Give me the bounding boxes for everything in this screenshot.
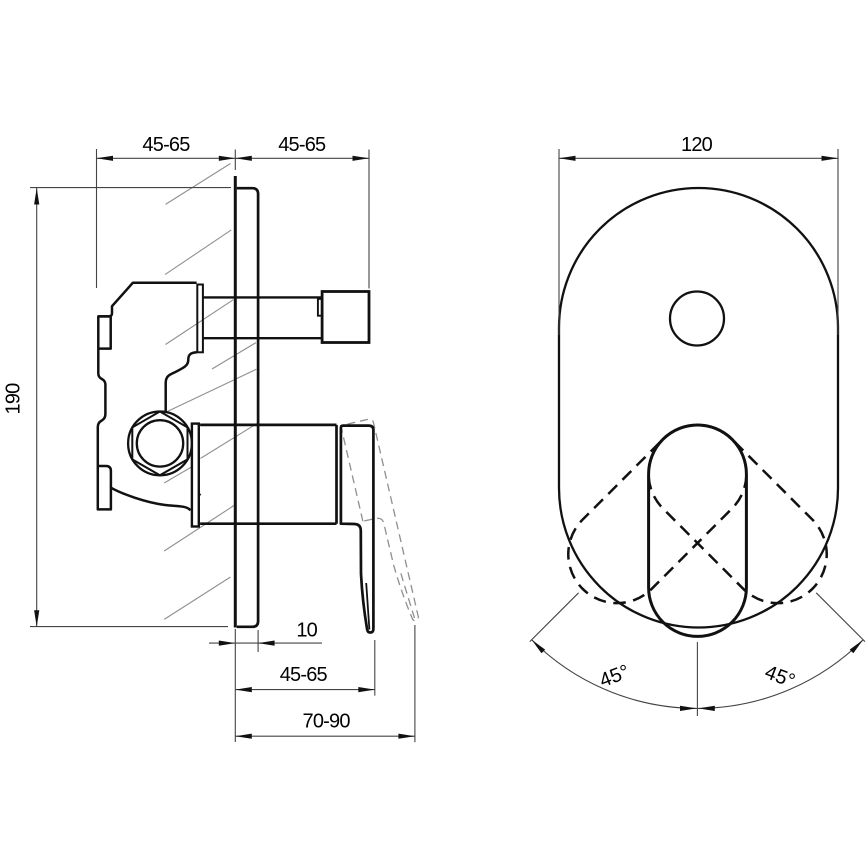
svg-text:10: 10	[296, 620, 317, 642]
svg-text:70-90: 70-90	[303, 711, 351, 733]
svg-text:45-65: 45-65	[278, 134, 326, 156]
svg-text:45°: 45°	[597, 661, 633, 692]
svg-text:45-65: 45-65	[142, 134, 190, 156]
svg-text:190: 190	[2, 383, 24, 415]
svg-text:120: 120	[681, 134, 713, 156]
svg-text:45-65: 45-65	[280, 664, 328, 686]
